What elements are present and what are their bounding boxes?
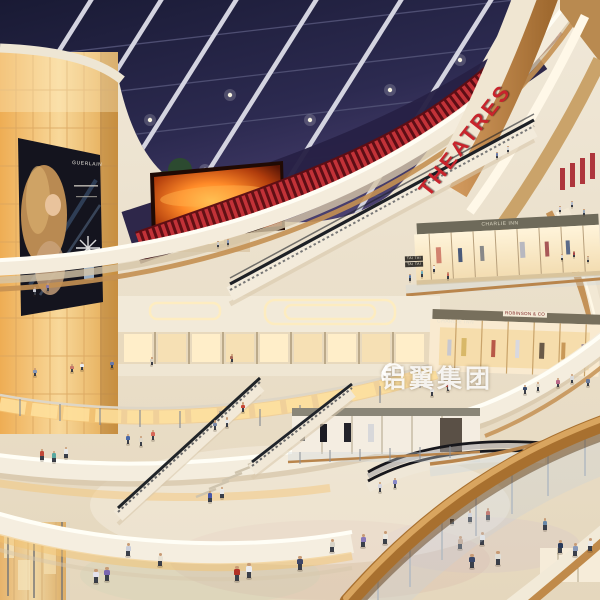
corridor-storefronts [124, 332, 424, 366]
suit-display [320, 424, 327, 442]
tai-tai-line1: TAI TAI [405, 256, 423, 262]
store-sign-charlie-inn-lower: CHARLIE INN [437, 318, 474, 325]
mall-atrium-render: THEATRES CHARLIE INN TAI TAI TAI TAI CHA… [0, 0, 600, 600]
watermark-swirl-icon [381, 359, 407, 385]
tai-tai-line2: TAI TAI [405, 262, 423, 268]
store-sign-tai-tai: TAI TAI TAI TAI [405, 256, 423, 268]
watermark: 铝翼集团 [381, 359, 493, 395]
model-face [45, 194, 61, 216]
